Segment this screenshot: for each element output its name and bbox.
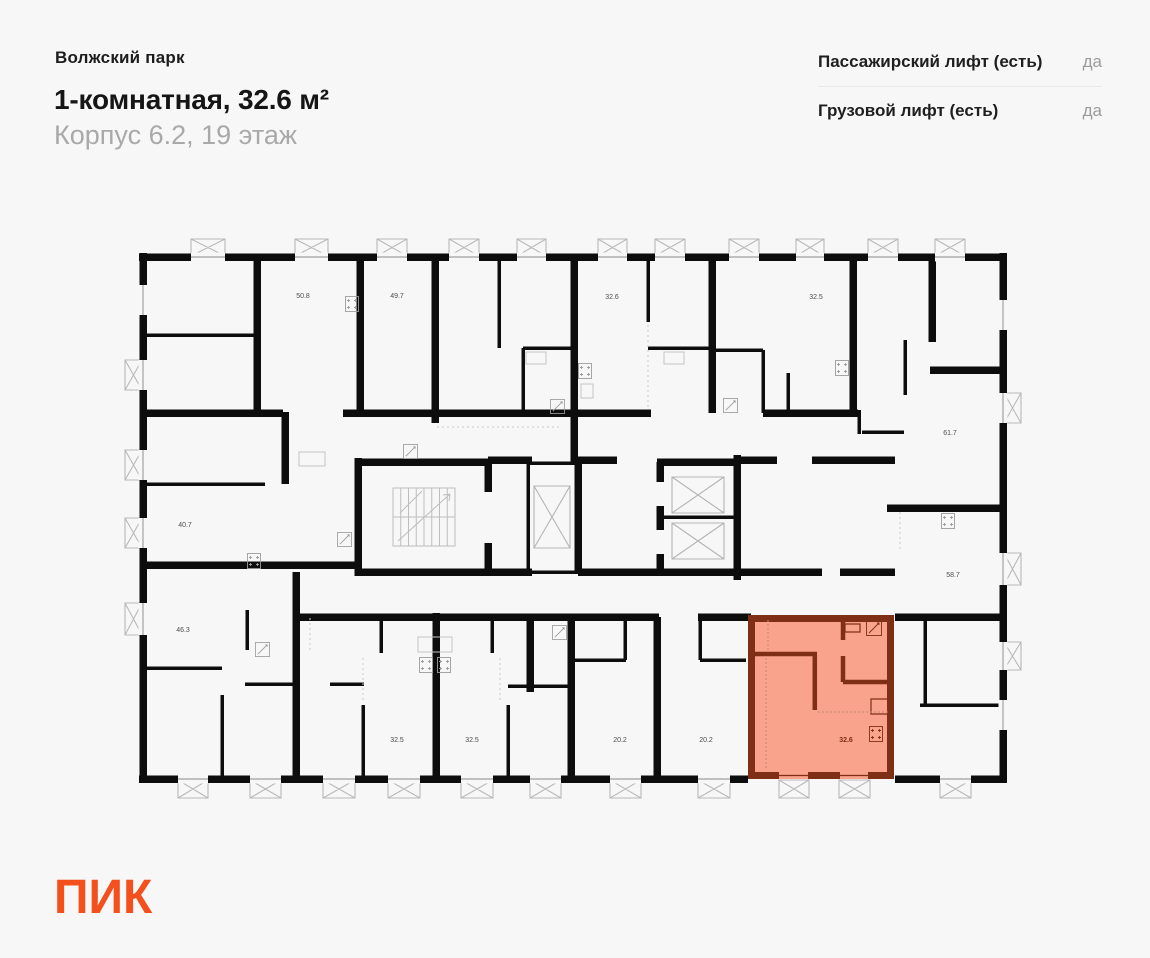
room-area-label: 32.5 — [390, 737, 404, 744]
room-area-label: 50.8 — [296, 293, 310, 300]
room-area-label: 20.2 — [613, 737, 627, 744]
room-area-label: 32.6 — [605, 294, 619, 301]
room-area-label: 58.7 — [946, 572, 960, 579]
staircase-icon — [393, 488, 455, 546]
room-area-label: 20.2 — [699, 737, 713, 744]
room-area-label: 32.5 — [465, 737, 479, 744]
floor-plan: 50.849.732.632.561.740.758.746.332.532.5… — [0, 0, 1150, 958]
room-area-label: 40.7 — [178, 522, 192, 529]
room-area-label: 32.5 — [809, 294, 823, 301]
room-area-label: 49.7 — [390, 293, 404, 300]
room-area-label: 32.6 — [839, 737, 853, 744]
room-area-label: 46.3 — [176, 627, 190, 634]
selected-apartment-area[interactable] — [748, 615, 894, 779]
selected-apartment[interactable] — [748, 615, 894, 779]
room-area-label: 61.7 — [943, 430, 957, 437]
pik-logo[interactable]: ПИК — [54, 870, 152, 925]
